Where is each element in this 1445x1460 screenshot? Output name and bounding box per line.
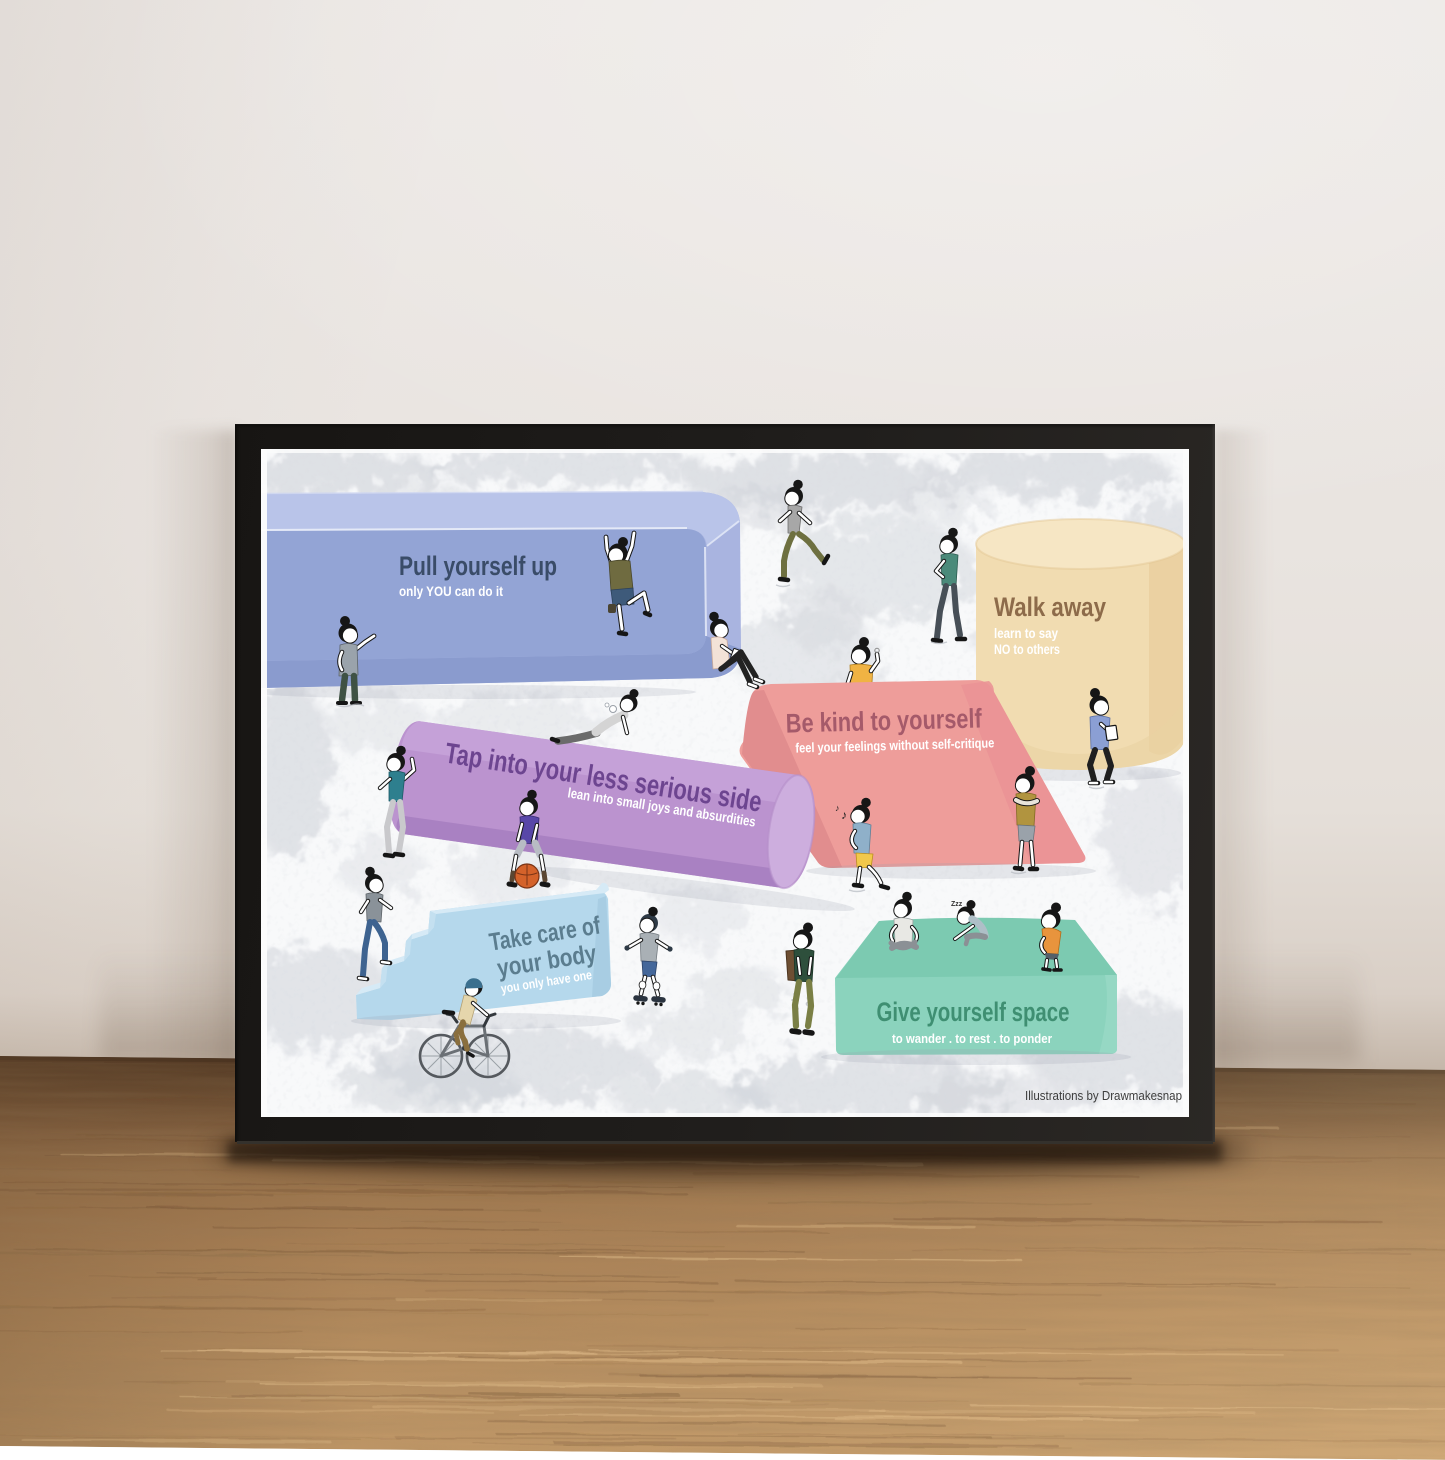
svg-text:to wander . to rest . to ponde: to wander . to rest . to ponder — [892, 1031, 1052, 1046]
svg-text:Be kind to yourself: Be kind to yourself — [785, 703, 983, 738]
svg-text:Pull yourself up: Pull yourself up — [399, 551, 557, 581]
svg-text:Zzz: Zzz — [951, 901, 963, 908]
svg-text:learn to say: learn to say — [994, 625, 1058, 641]
svg-text:Illustrations by Drawmakesnap: Illustrations by Drawmakesnap — [1025, 1089, 1182, 1103]
svg-text:only YOU can do it: only YOU can do it — [399, 583, 503, 599]
svg-text:Walk away: Walk away — [994, 592, 1106, 622]
svg-text:♪: ♪ — [835, 803, 840, 813]
svg-text:NO to others: NO to others — [994, 641, 1060, 657]
svg-text:♪: ♪ — [841, 808, 847, 822]
svg-text:Give yourself space: Give yourself space — [877, 997, 1070, 1027]
